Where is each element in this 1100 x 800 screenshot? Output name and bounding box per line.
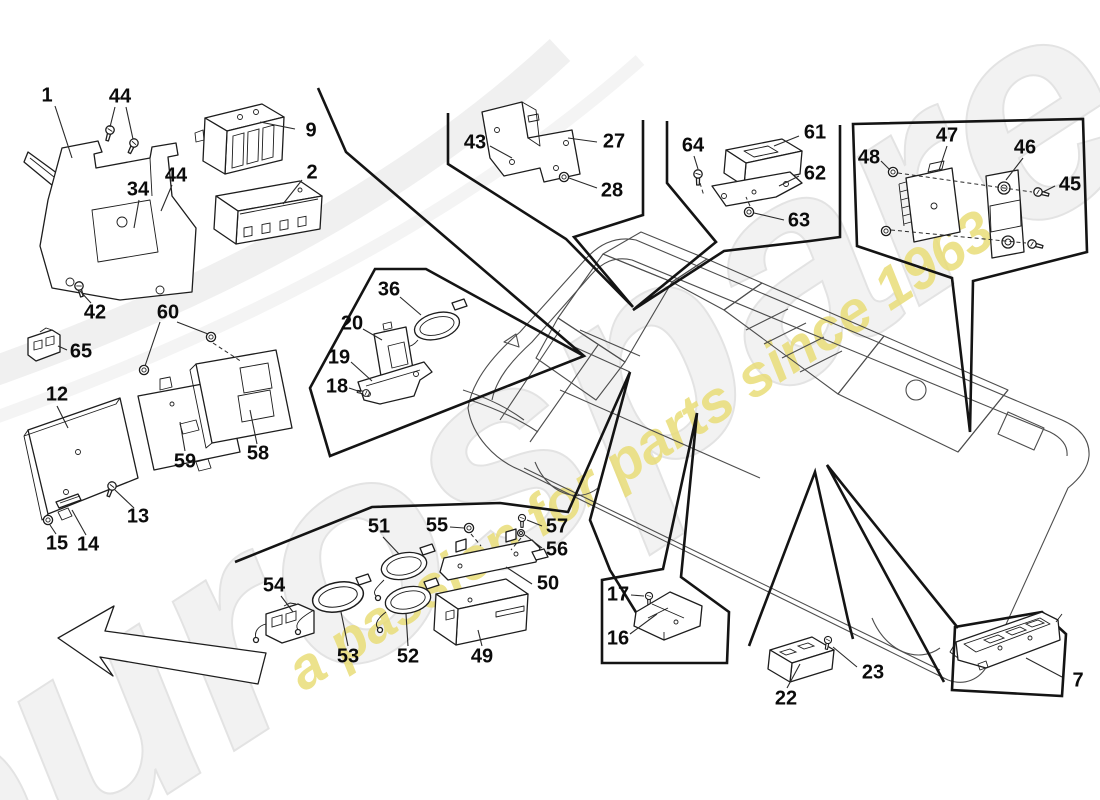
part-56-washer (518, 530, 525, 537)
part-16-drawing (634, 592, 702, 640)
part-9-drawing (195, 104, 284, 174)
part-46-drawing (986, 170, 1024, 258)
part-34-drawing (40, 141, 196, 300)
part-7-drawing (950, 612, 1062, 670)
parts-diagram: eurospares a passion for parts since 196… (0, 0, 1100, 800)
callout-box-7 (827, 465, 1066, 696)
part-15-nut (43, 515, 52, 524)
part-63-nut (744, 207, 753, 216)
diagram-artwork: eurospares a passion for parts since 196… (0, 0, 1100, 800)
part-22-drawing (768, 637, 834, 682)
part-55-nut (464, 523, 473, 532)
part-28-nut (559, 172, 568, 181)
